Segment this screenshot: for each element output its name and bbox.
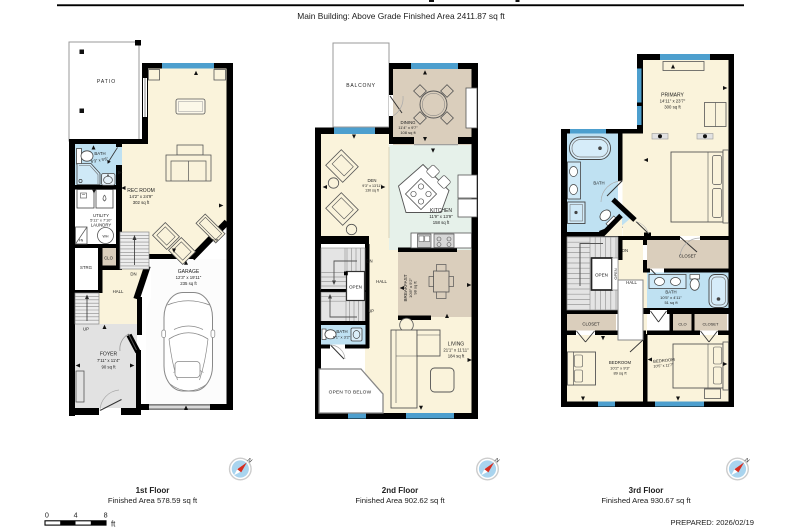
svg-text:DN: DN (130, 272, 136, 277)
svg-text:DN: DN (366, 259, 372, 264)
svg-text:130 sq ft: 130 sq ft (365, 188, 379, 192)
svg-text:BATH: BATH (336, 329, 347, 334)
svg-text:OPEN TO BELOW: OPEN TO BELOW (329, 390, 372, 396)
svg-text:1st Floor: 1st Floor (136, 486, 170, 495)
svg-text:CLO: CLO (104, 256, 113, 261)
svg-text:21'1" x 11'11": 21'1" x 11'11" (443, 348, 469, 353)
svg-text:DN: DN (622, 248, 628, 253)
svg-text:WH: WH (103, 234, 109, 238)
svg-text:184 sq ft: 184 sq ft (448, 354, 465, 359)
svg-text:CLOSET: CLOSET (582, 322, 600, 327)
svg-text:FN: FN (79, 239, 84, 243)
svg-text:CLO: CLO (678, 322, 686, 327)
svg-text:108 sq ft: 108 sq ft (400, 130, 416, 135)
svg-text:0: 0 (45, 510, 49, 519)
svg-text:235 sq ft: 235 sq ft (180, 281, 197, 286)
svg-text:12'3" x 19'11": 12'3" x 19'11" (176, 275, 202, 280)
svg-text:Finished Area 578.59 sq ft: Finished Area 578.59 sq ft (108, 496, 198, 505)
svg-text:8: 8 (104, 510, 108, 519)
svg-text:7'11" x 11'4": 7'11" x 11'4" (97, 358, 120, 363)
svg-text:BATH: BATH (94, 151, 105, 156)
svg-text:STRG: STRG (80, 265, 93, 270)
svg-text:158 sq ft: 158 sq ft (433, 220, 450, 225)
svg-text:OPEN: OPEN (349, 285, 362, 290)
svg-text:98 sq ft: 98 sq ft (413, 281, 418, 295)
svg-text:Finished Area 930.67 sq ft: Finished Area 930.67 sq ft (601, 496, 691, 505)
svg-text:300 sq ft: 300 sq ft (664, 105, 681, 110)
svg-text:F/P: F/P (212, 238, 219, 243)
svg-text:3rd Floor: 3rd Floor (629, 486, 664, 495)
svg-text:BATH: BATH (593, 181, 604, 186)
svg-text:6'1" x 3'2": 6'1" x 3'2" (333, 335, 351, 340)
svg-text:9'3" x 13'11": 9'3" x 13'11" (362, 184, 382, 188)
svg-text:Main Building: Above Grade Fin: Main Building: Above Grade Finished Area… (297, 11, 505, 21)
svg-text:4: 4 (74, 510, 78, 519)
svg-text:302 sq ft: 302 sq ft (133, 200, 150, 205)
svg-text:2nd Floor: 2nd Floor (382, 486, 418, 495)
svg-text:HALL: HALL (626, 280, 637, 285)
svg-text:OPEN: OPEN (613, 268, 618, 279)
svg-text:BATH: BATH (665, 290, 676, 295)
svg-text:FOYER: FOYER (100, 352, 118, 358)
svg-text:OPEN: OPEN (595, 273, 608, 278)
svg-text:PREPARED: 2026/02/19: PREPARED: 2026/02/19 (671, 518, 754, 527)
svg-text:14'2" x 24'9": 14'2" x 24'9" (129, 194, 153, 199)
svg-text:CLOSET: CLOSET (702, 322, 719, 327)
svg-text:CLOSET: CLOSET (679, 254, 697, 259)
svg-text:UP: UP (83, 327, 89, 332)
svg-text:14'11" x 23'7": 14'11" x 23'7" (660, 99, 686, 104)
svg-text:BEDROOM: BEDROOM (609, 360, 632, 365)
svg-text:UP: UP (368, 309, 374, 314)
svg-text:LAUNDRY: LAUNDRY (91, 223, 112, 228)
svg-text:HALL: HALL (113, 289, 124, 294)
svg-text:DEN: DEN (367, 178, 376, 183)
svg-text:10'2" x 9'3": 10'2" x 9'3" (610, 365, 630, 370)
svg-text:89 sq ft: 89 sq ft (613, 371, 627, 376)
svg-text:51 sq ft: 51 sq ft (664, 300, 678, 305)
svg-text:PATIO: PATIO (97, 79, 116, 85)
svg-text:11'9" x 13'9": 11'9" x 13'9" (429, 214, 453, 219)
svg-text:BALCONY: BALCONY (346, 83, 376, 89)
svg-text:Finished Area 902.62 sq ft: Finished Area 902.62 sq ft (355, 496, 445, 505)
svg-text:90 sq ft: 90 sq ft (101, 365, 116, 370)
svg-text:HALL: HALL (376, 279, 387, 284)
